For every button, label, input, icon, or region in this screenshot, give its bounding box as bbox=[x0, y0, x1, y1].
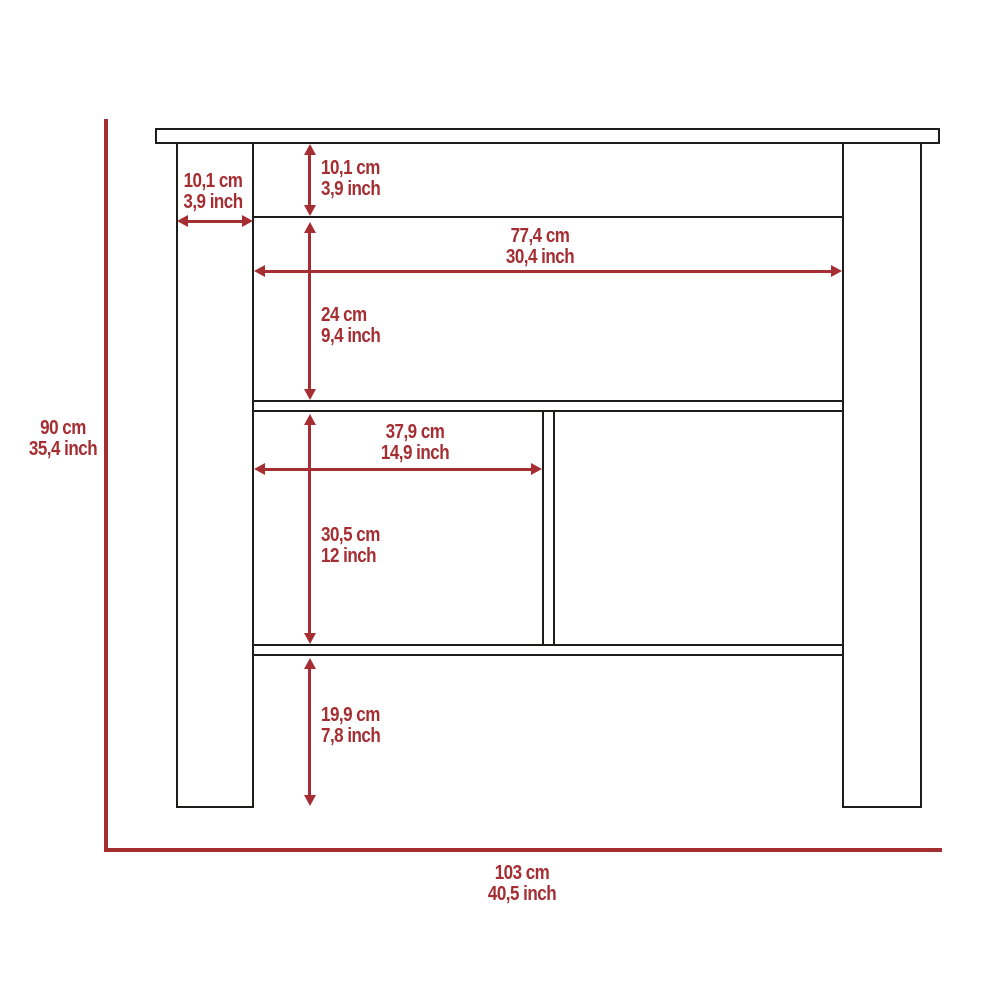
label-top-shelf-height-cm: 10,1 cm bbox=[321, 158, 380, 179]
arrowhead-up-icon bbox=[304, 222, 316, 233]
arrowhead-right-icon bbox=[831, 265, 842, 277]
label-inner-width: 77,4 cm 30,4 inch bbox=[464, 226, 617, 268]
arrow-line bbox=[263, 468, 533, 471]
arrow-line bbox=[308, 153, 311, 207]
left-leg bbox=[176, 142, 254, 808]
arrow-line bbox=[308, 231, 311, 391]
arrowhead-up-icon bbox=[304, 144, 316, 155]
arrowhead-right-icon bbox=[531, 463, 542, 475]
arrowhead-left-icon bbox=[177, 215, 188, 227]
arrowhead-down-icon bbox=[304, 205, 316, 216]
label-overall-height-cm: 90 cm bbox=[16, 418, 110, 439]
overall-height-reference-line bbox=[104, 119, 108, 852]
label-middle-compartment-height-inch: 12 inch bbox=[321, 546, 380, 567]
label-inner-width-inch: 30,4 inch bbox=[464, 247, 617, 268]
label-left-compartment-width: 37,9 cm 14,9 inch bbox=[343, 422, 488, 464]
label-bottom-clearance-cm: 19,9 cm bbox=[321, 705, 380, 726]
middle-shelf-board bbox=[254, 400, 842, 412]
label-overall-height: 90 cm 35,4 inch bbox=[16, 418, 110, 460]
right-leg bbox=[842, 142, 922, 808]
label-top-shelf-height-inch: 3,9 inch bbox=[321, 179, 380, 200]
arrow-line bbox=[263, 270, 833, 273]
dimension-diagram: 10,1 cm 3,9 inch 10,1 cm 3,9 inch 77,4 c… bbox=[0, 0, 1000, 1000]
label-middle-compartment-height: 30,5 cm 12 inch bbox=[321, 525, 380, 567]
arrowhead-up-icon bbox=[304, 658, 316, 669]
vertical-divider-panel bbox=[542, 412, 555, 645]
label-left-compartment-width-cm: 37,9 cm bbox=[343, 422, 488, 443]
label-leg-width: 10,1 cm 3,9 inch bbox=[171, 171, 256, 213]
label-left-compartment-width-inch: 14,9 inch bbox=[343, 443, 488, 464]
top-shelf-line bbox=[254, 216, 842, 218]
arrowhead-down-icon bbox=[304, 795, 316, 806]
label-overall-height-inch: 35,4 inch bbox=[16, 439, 110, 460]
label-upper-compartment-height-inch: 9,4 inch bbox=[321, 326, 380, 347]
arrowhead-left-icon bbox=[254, 265, 265, 277]
arrowhead-up-icon bbox=[304, 414, 316, 425]
overall-width-reference-line bbox=[104, 848, 942, 852]
label-leg-width-cm: 10,1 cm bbox=[171, 171, 256, 192]
label-inner-width-cm: 77,4 cm bbox=[464, 226, 617, 247]
label-upper-compartment-height-cm: 24 cm bbox=[321, 305, 380, 326]
arrowhead-right-icon bbox=[242, 215, 253, 227]
label-leg-width-inch: 3,9 inch bbox=[171, 192, 256, 213]
label-bottom-clearance-inch: 7,8 inch bbox=[321, 726, 380, 747]
arrow-line bbox=[308, 423, 311, 635]
arrowhead-down-icon bbox=[304, 389, 316, 400]
label-bottom-clearance: 19,9 cm 7,8 inch bbox=[321, 705, 380, 747]
label-overall-width-cm: 103 cm bbox=[446, 863, 599, 884]
label-overall-width: 103 cm 40,5 inch bbox=[446, 863, 599, 905]
label-upper-compartment-height: 24 cm 9,4 inch bbox=[321, 305, 380, 347]
label-overall-width-inch: 40,5 inch bbox=[446, 884, 599, 905]
label-middle-compartment-height-cm: 30,5 cm bbox=[321, 525, 380, 546]
arrow-line bbox=[186, 220, 244, 223]
arrowhead-down-icon bbox=[304, 633, 316, 644]
lower-shelf-board bbox=[254, 644, 842, 656]
arrow-line bbox=[308, 667, 311, 797]
arrowhead-left-icon bbox=[254, 463, 265, 475]
label-top-shelf-height: 10,1 cm 3,9 inch bbox=[321, 158, 380, 200]
countertop bbox=[155, 128, 940, 144]
